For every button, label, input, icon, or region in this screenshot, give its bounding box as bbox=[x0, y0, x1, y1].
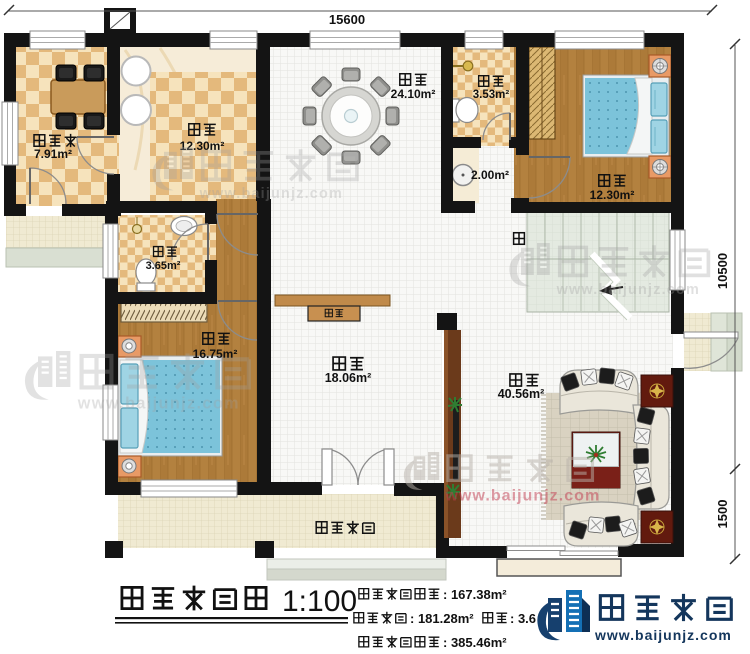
svg-text:www.baijunjz.com: www.baijunjz.com bbox=[444, 486, 600, 504]
svg-text:1:100: 1:100 bbox=[282, 585, 357, 618]
svg-text:www.baijunjz.com: www.baijunjz.com bbox=[199, 186, 343, 202]
svg-text:: 181.28m²: : 181.28m² bbox=[410, 611, 474, 626]
svg-text:24.10m²: 24.10m² bbox=[391, 87, 436, 101]
svg-text:12.30m²: 12.30m² bbox=[590, 188, 635, 202]
svg-text:: 3.6: : 3.6 bbox=[510, 611, 536, 626]
svg-text:3.65m²: 3.65m² bbox=[146, 260, 181, 272]
svg-text:www.baijunjz.com: www.baijunjz.com bbox=[556, 282, 700, 298]
svg-text:www.baijunjz.com: www.baijunjz.com bbox=[594, 627, 732, 643]
svg-text:18.06m²: 18.06m² bbox=[325, 371, 372, 385]
svg-text:7.91m²: 7.91m² bbox=[34, 147, 72, 161]
svg-text:1500: 1500 bbox=[715, 500, 730, 529]
svg-text:40.56m²: 40.56m² bbox=[498, 387, 545, 401]
svg-text:3.53m²: 3.53m² bbox=[473, 89, 510, 101]
svg-text:10500: 10500 bbox=[715, 253, 730, 289]
svg-text:www.baijunjz.com: www.baijunjz.com bbox=[77, 395, 240, 413]
svg-text:: 167.38m²: : 167.38m² bbox=[443, 587, 507, 602]
svg-text:2.00m²: 2.00m² bbox=[471, 168, 509, 182]
svg-text:: 385.46m²: : 385.46m² bbox=[443, 635, 507, 650]
svg-text:15600: 15600 bbox=[329, 12, 365, 27]
